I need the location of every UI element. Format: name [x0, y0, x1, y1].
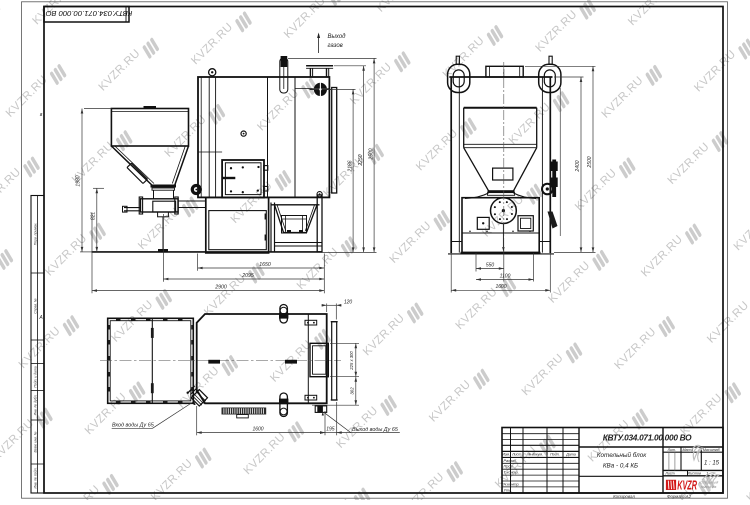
svg-text:KVZR.RU: KVZR.RU	[745, 458, 750, 500]
svg-text:Взам. инв. №: Взам. инв. №	[34, 431, 38, 452]
svg-text:Лит.: Лит.	[667, 448, 676, 452]
svg-text:газов: газов	[328, 43, 343, 49]
svg-text:№ докум.: № докум.	[527, 453, 543, 457]
svg-text:А: А	[38, 315, 43, 321]
svg-text:2900: 2900	[214, 285, 227, 291]
svg-text:1600: 1600	[495, 284, 506, 290]
svg-text:Утв.: Утв.	[504, 488, 513, 492]
svg-text:KVZR.RU: KVZR.RU	[123, 0, 169, 1]
svg-text:Копировал: Копировал	[613, 494, 635, 499]
svg-text:ЗАВОД РФ: ЗАВОД РФ	[701, 485, 717, 489]
svg-text:821: 821	[90, 212, 96, 221]
svg-text:550: 550	[486, 262, 495, 268]
svg-text:225 х 300: 225 х 300	[349, 351, 354, 371]
svg-text:Подп. и дата: Подп. и дата	[34, 366, 38, 387]
svg-text:KVZR.RU: KVZR.RU	[454, 286, 500, 332]
svg-text:KVZR.RU: KVZR.RU	[295, 246, 341, 292]
svg-text:Вход воды Ду 65: Вход воды Ду 65	[112, 422, 155, 428]
svg-text:Изм.: Изм.	[502, 453, 510, 457]
svg-text:Т.контр.: Т.контр.	[504, 471, 519, 475]
svg-text:KVZR.RU: KVZR.RU	[679, 392, 725, 438]
svg-text:Котельный блок: Котельный блок	[597, 451, 647, 459]
svg-text:302: 302	[349, 387, 354, 395]
svg-text:KVZR.RU: KVZR.RU	[692, 48, 738, 94]
svg-text:1650: 1650	[259, 262, 271, 268]
svg-text:2500: 2500	[587, 156, 593, 168]
svg-text:2250: 2250	[358, 154, 364, 166]
svg-text:KVZR.RU: KVZR.RU	[361, 312, 407, 358]
svg-text:KVZR.RU: KVZR.RU	[56, 483, 102, 500]
svg-text:KVZR.RU: KVZR.RU	[388, 220, 434, 266]
svg-text:2400: 2400	[575, 160, 581, 172]
svg-text:KVZR.RU: KVZR.RU	[17, 325, 63, 371]
svg-text:KVZR.RU: KVZR.RU	[109, 298, 155, 344]
svg-text:Разраб.: Разраб.	[504, 459, 518, 463]
svg-text:195: 195	[326, 426, 335, 432]
svg-text:1 : 15: 1 : 15	[704, 460, 720, 466]
svg-text:KVZR.RU: KVZR.RU	[533, 8, 579, 54]
svg-text:KVZR.RU: KVZR.RU	[189, 21, 235, 67]
svg-text:Формат А2: Формат А2	[667, 494, 692, 499]
svg-text:KVZR.RU: KVZR.RU	[427, 378, 473, 424]
svg-text:Лист: Лист	[664, 472, 674, 476]
svg-text:КВа - 0,4 КБ: КВа - 0,4 КБ	[603, 462, 638, 469]
svg-text:KVZR.RU: KVZR.RU	[4, 74, 50, 120]
svg-text:Дата: Дата	[565, 453, 575, 457]
svg-text:KVZR.RU: KVZR.RU	[732, 207, 750, 253]
svg-text:KVZR.RU: KVZR.RU	[43, 232, 89, 278]
svg-text:Пров.: Пров.	[504, 465, 514, 469]
svg-text:2500: 2500	[368, 148, 374, 160]
svg-text:Выход: Выход	[328, 34, 347, 40]
svg-text:KVZR.RU: KVZR.RU	[83, 391, 129, 437]
svg-text:KVZR.RU: KVZR.RU	[573, 167, 619, 213]
svg-text:Подп.: Подп.	[550, 453, 560, 457]
svg-text:Инв. № дубл.: Инв. № дубл.	[34, 395, 38, 416]
svg-text:Инв. № подл.: Инв. № подл.	[34, 467, 38, 488]
svg-text:KVZR.RU: KVZR.RU	[400, 471, 446, 500]
svg-text:1600: 1600	[252, 426, 263, 432]
svg-text:KVZR.RU: KVZR.RU	[612, 326, 658, 372]
svg-text:Масштаб: Масштаб	[703, 448, 721, 452]
svg-text:KVZR.RU: KVZR.RU	[414, 127, 460, 173]
svg-text:Лист: Лист	[511, 453, 521, 457]
svg-text:KVZR.RU: KVZR.RU	[639, 233, 685, 279]
svg-text:КВТУ.034.071.00.000 ВО: КВТУ.034.071.00.000 ВО	[603, 432, 692, 442]
svg-text:KVZR: KVZR	[677, 478, 697, 493]
svg-text:Листов 1: Листов 1	[687, 472, 708, 476]
svg-text:KVZR.RU: KVZR.RU	[242, 431, 288, 477]
svg-text:KVZR.RU: KVZR.RU	[520, 352, 566, 398]
svg-text:2186: 2186	[347, 160, 353, 172]
svg-text:1100: 1100	[500, 273, 511, 279]
svg-text:KVZR.RU: KVZR.RU	[600, 74, 646, 120]
svg-text:2095: 2095	[241, 273, 254, 279]
svg-text:1980: 1980	[76, 175, 82, 186]
svg-text:KVZR.RU: KVZR.RU	[546, 259, 592, 305]
svg-text:Выход воды Ду 65: Выход воды Ду 65	[352, 427, 399, 433]
svg-text:в: в	[40, 112, 43, 118]
svg-text:KVZR.RU: KVZR.RU	[0, 166, 23, 212]
svg-text:KVZR.RU: KVZR.RU	[666, 141, 712, 187]
svg-text:120: 120	[344, 299, 353, 305]
svg-text:Перв. примен.: Перв. примен.	[34, 223, 38, 246]
svg-text:KVZR.RU: KVZR.RU	[348, 61, 394, 107]
svg-text:Справ. №: Справ. №	[34, 298, 38, 314]
svg-text:KVZR.RU: KVZR.RU	[97, 47, 143, 93]
svg-text:Н.контр.: Н.контр.	[504, 482, 520, 486]
svg-text:KVZR.RU: KVZR.RU	[626, 0, 672, 28]
svg-text:КВТУ.034.071.00.000 ВО: КВТУ.034.071.00.000 ВО	[46, 9, 133, 18]
